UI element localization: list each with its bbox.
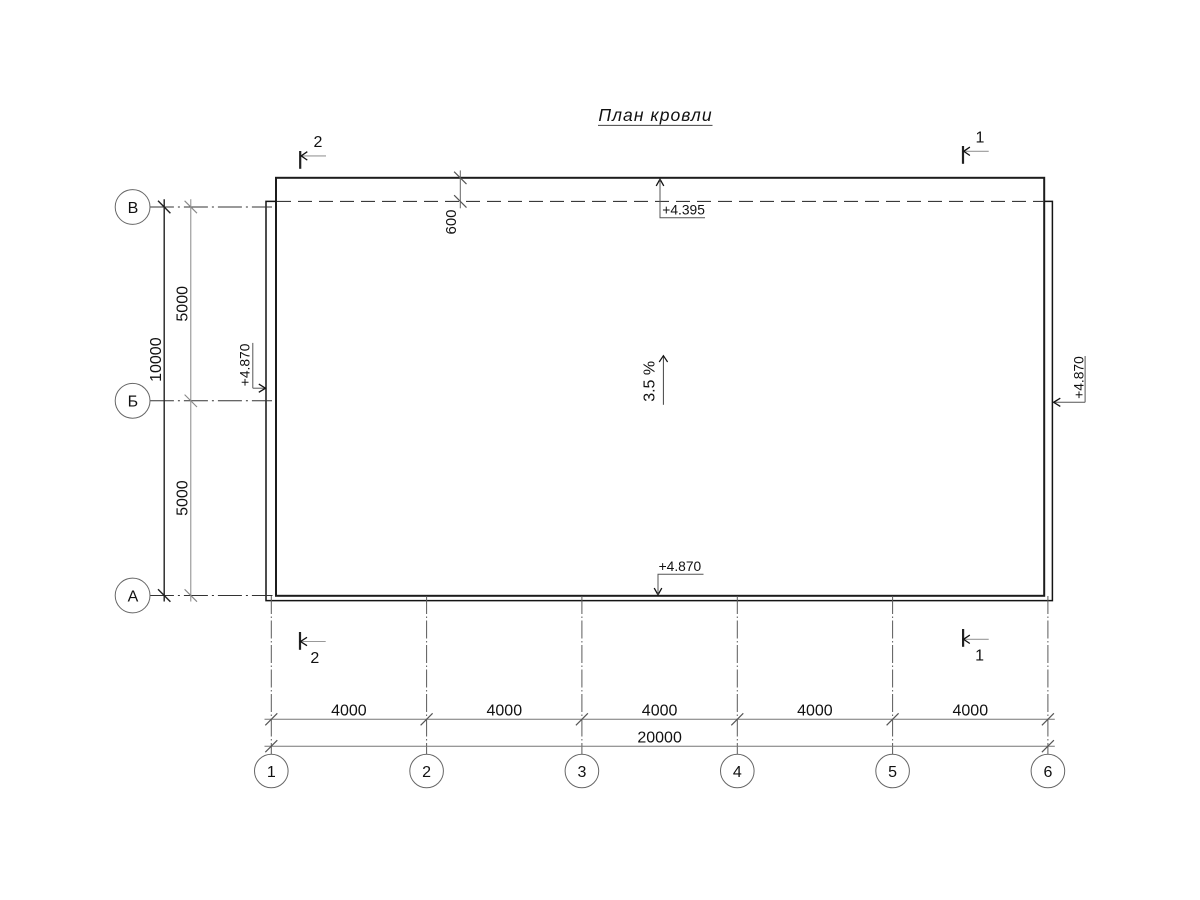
- svg-text:4000: 4000: [331, 702, 367, 719]
- svg-text:В: В: [128, 200, 139, 217]
- svg-text:600: 600: [443, 209, 460, 234]
- svg-text:6: 6: [1043, 764, 1052, 781]
- svg-text:5: 5: [888, 764, 897, 781]
- svg-text:4000: 4000: [797, 702, 833, 719]
- svg-text:+4.870: +4.870: [659, 559, 702, 574]
- svg-text:3.5 %: 3.5 %: [641, 361, 658, 402]
- svg-text:+4.870: +4.870: [1071, 356, 1086, 399]
- svg-text:4000: 4000: [642, 702, 678, 719]
- svg-text:4000: 4000: [953, 702, 989, 719]
- svg-text:Б: Б: [128, 394, 139, 411]
- svg-text:+4.870: +4.870: [238, 343, 253, 386]
- svg-text:3: 3: [577, 764, 586, 781]
- svg-text:5000: 5000: [175, 286, 192, 322]
- svg-text:2: 2: [422, 764, 431, 781]
- svg-text:2: 2: [310, 650, 319, 667]
- svg-text:+4.395: +4.395: [662, 202, 705, 217]
- svg-text:1: 1: [975, 130, 984, 147]
- svg-text:План кровли: План кровли: [598, 105, 712, 125]
- svg-text:4: 4: [733, 764, 742, 781]
- svg-text:10000: 10000: [148, 337, 165, 382]
- svg-text:А: А: [128, 588, 139, 605]
- svg-text:1: 1: [267, 764, 276, 781]
- svg-text:5000: 5000: [175, 480, 192, 516]
- svg-text:4000: 4000: [487, 702, 523, 719]
- svg-text:2: 2: [313, 134, 322, 151]
- svg-text:20000: 20000: [637, 729, 682, 746]
- svg-text:1: 1: [975, 648, 984, 665]
